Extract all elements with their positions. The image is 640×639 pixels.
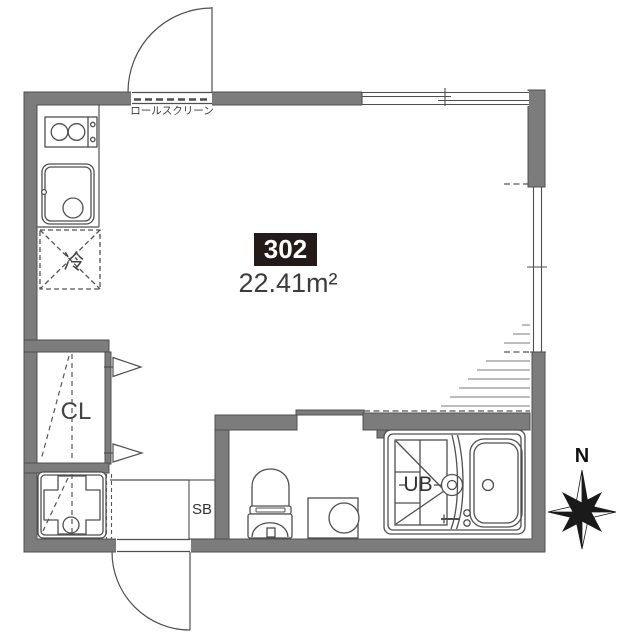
unit-number-badge: 302 [254,233,317,266]
unit-area-label: 22.41m² [228,268,348,299]
entrance-opening [116,538,191,553]
unit-bath-label: UB [400,473,436,497]
door-top [128,7,212,104]
floor-plan: ロールスクリーン 302 22.41m² CL 冷 SB UB N [0,0,640,639]
washing-machine-space-icon [308,498,359,538]
refrigerator-label: 冷 [58,246,90,276]
roll-screen-label: ロールスクリーン [130,103,214,118]
toilet-icon [248,469,292,538]
shoe-box-label: SB [189,501,215,518]
right-window-opening [530,188,547,352]
ceiling-boundary-dashes [364,184,530,411]
closet-label: CL [50,398,102,426]
floor-plan-drawing [0,0,640,639]
stove-icon [45,117,97,147]
compass-rose [548,470,616,549]
shower-faucet-icon [442,475,463,496]
kitchen-sink-icon [42,164,94,224]
entrance-door [112,540,190,631]
compass-north-label: N [566,445,598,468]
entrance-partition-dashes [107,474,112,539]
sloped-ceiling-hatch [441,325,530,406]
